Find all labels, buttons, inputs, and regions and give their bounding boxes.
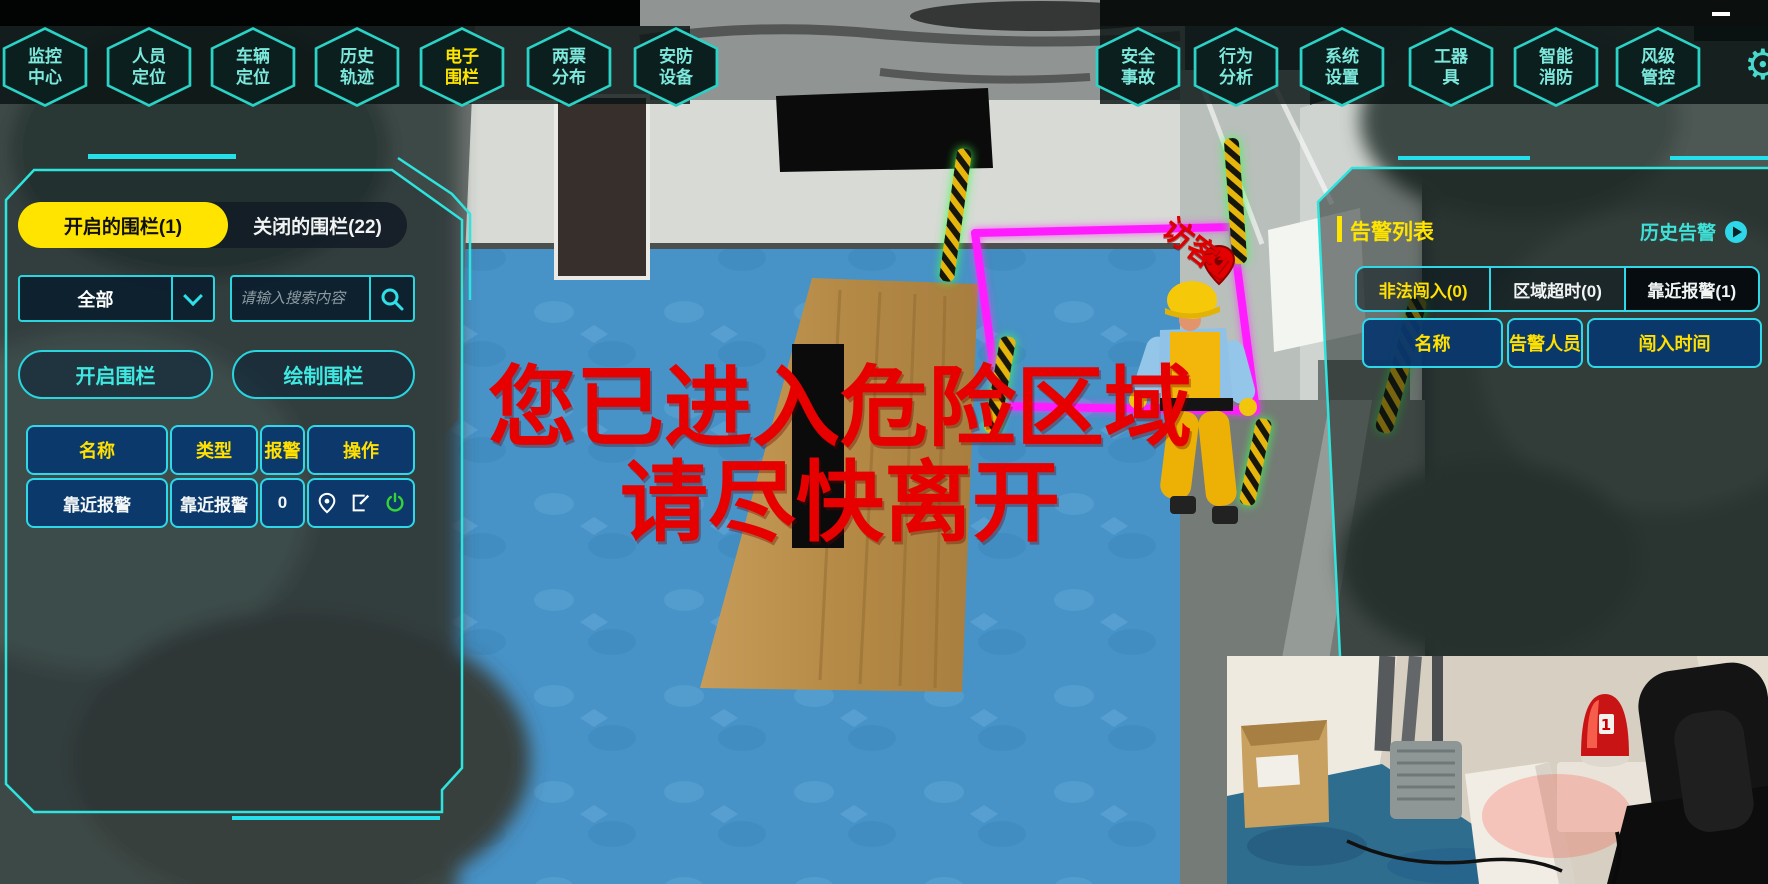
chevron-down-icon xyxy=(173,292,213,306)
fence-filter-dropdown[interactable]: 全部 xyxy=(18,275,215,322)
col-header-type: 类型 xyxy=(170,425,258,475)
warning-line-1: 您已进入危险区域 xyxy=(400,360,1280,455)
alarm-type-tabs: 非法闯入(0) 区域超时(0) 靠近报警(1) xyxy=(1355,266,1760,312)
open-fence-button[interactable]: 开启围栏 xyxy=(18,350,213,399)
history-alarm-link[interactable]: 历史告警 xyxy=(1640,218,1748,245)
top-strip xyxy=(0,0,640,26)
app-window: 访客1 您已进入危险区域 请尽快离开 xyxy=(0,0,1768,884)
col-header-alarm-name: 名称 xyxy=(1362,318,1503,368)
tab-zone-timeout[interactable]: 区域超时(0) xyxy=(1489,268,1623,310)
play-circle-icon xyxy=(1724,220,1748,244)
filter-value: 全部 xyxy=(20,286,171,312)
settings-gear-icon[interactable]: ⚙ xyxy=(1744,40,1768,89)
danger-warning-text: 您已进入危险区域 请尽快离开 xyxy=(400,360,1280,550)
draw-fence-button[interactable]: 绘制围栏 xyxy=(232,350,415,399)
row-alarm-count: 0 xyxy=(260,478,305,528)
search-input[interactable] xyxy=(232,290,369,307)
power-toggle-icon[interactable] xyxy=(384,492,406,514)
search-icon[interactable] xyxy=(371,287,413,311)
svg-text:1: 1 xyxy=(1601,716,1611,734)
row-fence-name: 靠近报警 xyxy=(26,478,168,528)
warning-line-2: 请尽快离开 xyxy=(400,455,1280,550)
tab-closed-fences[interactable]: 关闭的围栏(22) xyxy=(228,202,407,248)
edit-icon[interactable] xyxy=(350,492,372,514)
col-header-action: 操作 xyxy=(307,425,415,475)
tab-open-fences[interactable]: 开启的围栏(1) xyxy=(18,202,228,248)
col-header-alarm-person: 告警人员 xyxy=(1507,318,1583,368)
locate-pin-icon[interactable] xyxy=(316,492,338,514)
camera-feed: 1 xyxy=(1227,656,1768,884)
history-alarm-label: 历史告警 xyxy=(1640,218,1716,245)
row-fence-type: 靠近报警 xyxy=(170,478,258,528)
minimize-icon[interactable] xyxy=(1712,12,1730,16)
top-strip xyxy=(1100,0,1768,26)
fence-search-box xyxy=(230,275,415,322)
row-actions xyxy=(307,478,415,528)
alarm-list-title: 告警列表 xyxy=(1350,216,1434,246)
tab-illegal-entry[interactable]: 非法闯入(0) xyxy=(1357,268,1489,310)
title-accent-bar xyxy=(1337,216,1342,242)
tab-proximity-alarm[interactable]: 靠近报警(1) xyxy=(1624,268,1758,310)
col-header-name: 名称 xyxy=(26,425,168,475)
col-header-alarm: 报警 xyxy=(260,425,305,475)
col-header-entry-time: 闯入时间 xyxy=(1587,318,1762,368)
